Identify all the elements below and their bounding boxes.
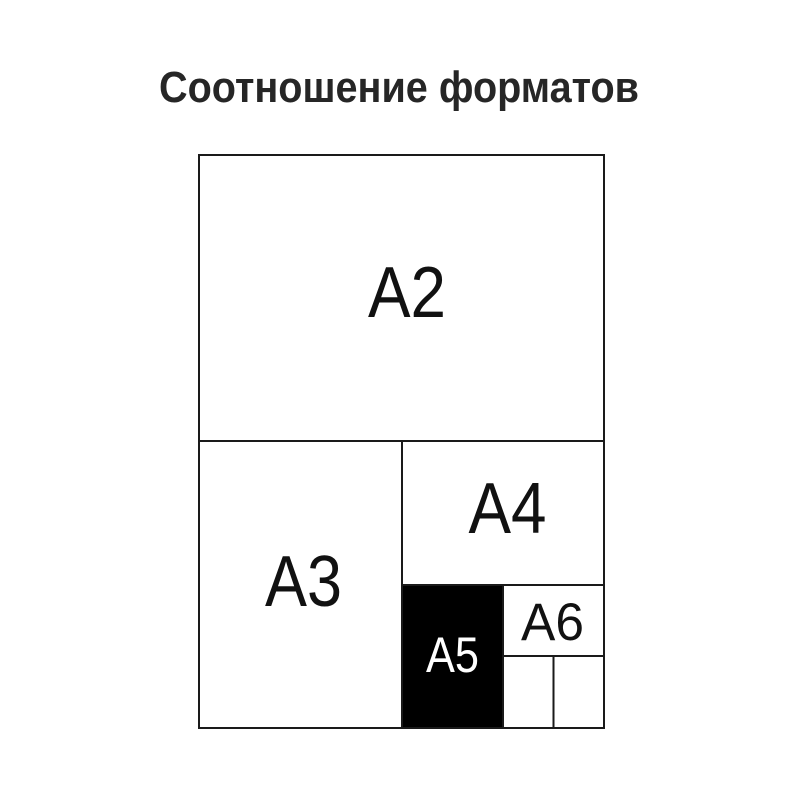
svg-text:A6: A6 [521, 593, 584, 652]
svg-text:A3: A3 [265, 542, 342, 622]
svg-text:A5: A5 [426, 627, 479, 683]
svg-text:A2: A2 [368, 253, 446, 333]
svg-text:Соотношение форматов: Соотношение форматов [159, 63, 639, 112]
svg-text:A4: A4 [469, 469, 547, 549]
